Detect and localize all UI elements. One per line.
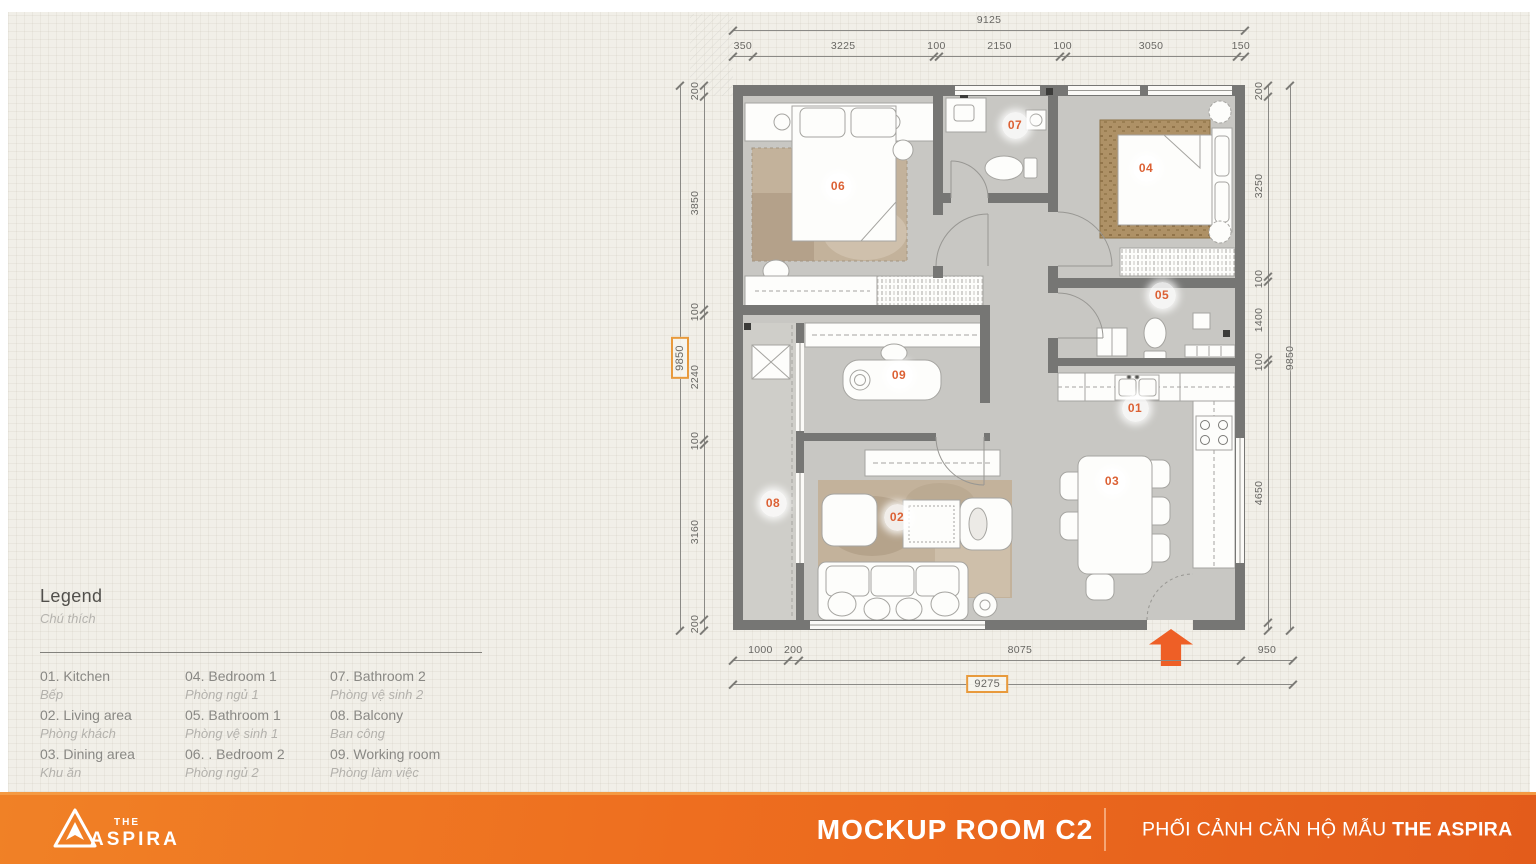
brand-logo: THE ASPIRA	[52, 807, 180, 849]
mockup-room-c2-slide: { "legend": { "title": "Legend", "subtit…	[0, 0, 1536, 864]
room-badge-04: 04	[1133, 155, 1160, 182]
room-badge-06: 06	[825, 173, 852, 200]
legend-items: 01. KitchenBếp02. Living areaPhòng khách…	[40, 667, 510, 784]
legend-item-vi: Phòng vệ sinh 1	[185, 725, 330, 743]
dim-right-overall-label: 9850	[1284, 345, 1296, 370]
room-badge-08: 08	[760, 490, 787, 517]
dim-right-segments-3: 1400	[1253, 308, 1265, 333]
dim-top-segments-1: 3225	[831, 40, 856, 52]
dim-top-segments-3: 2150	[987, 40, 1012, 52]
dim-bottom-overall-label: 9275	[966, 675, 1008, 693]
legend-item-vi: Ban công	[330, 725, 500, 743]
room-badge-07: 07	[1002, 112, 1029, 139]
legend-item-7: 07. Bathroom 2Phòng vệ sinh 2	[330, 667, 500, 706]
dim-right-segments-5: 4650	[1253, 481, 1265, 506]
dim-left-segments-2: 100	[689, 303, 701, 321]
legend-item-en: 04. Bedroom 1	[185, 667, 330, 686]
legend-item-en: 08. Balcony	[330, 706, 500, 725]
floor-plan: 0102030405060708099125350322510021501003…	[640, 8, 1440, 732]
dim-bottom-overall-line	[733, 684, 1293, 685]
legend-divider	[40, 652, 482, 653]
dim-left-segments-6: 200	[689, 615, 701, 633]
room-badge-03: 03	[1099, 468, 1126, 495]
dim-left-segments-5: 3160	[689, 519, 701, 544]
brand-logo-text: THE ASPIRA	[90, 818, 180, 849]
legend-item-5: 05. Bathroom 1Phòng vệ sinh 1	[185, 706, 330, 745]
dim-top-segments-line	[733, 56, 1245, 57]
dim-bottom-segments-3: 950	[1258, 644, 1276, 656]
legend-item-2: 02. Living areaPhòng khách	[40, 706, 185, 745]
dim-right-segments-4: 100	[1253, 352, 1265, 370]
dim-top-segments-6: 150	[1232, 40, 1250, 52]
legend-item-vi: Phòng ngủ 2	[185, 764, 330, 782]
legend-item-8: 08. BalconyBan công	[330, 706, 500, 745]
legend-item-4: 04. Bedroom 1Phòng ngủ 1	[185, 667, 330, 706]
room-badge-09: 09	[886, 362, 913, 389]
dim-left-segments-1: 3850	[689, 190, 701, 215]
dim-bottom-segments-1: 200	[784, 644, 802, 656]
footer-divider	[1104, 808, 1106, 851]
subtitle-regular: PHỐI CẢNH CĂN HỘ MẪU	[1142, 818, 1392, 840]
dim-left-segments-4: 100	[689, 432, 701, 450]
dim-top-segments-0: 350	[734, 40, 752, 52]
dim-top-overall-line	[733, 30, 1245, 31]
legend-item-vi: Phòng khách	[40, 725, 185, 743]
legend-item-1: 01. KitchenBếp	[40, 667, 185, 706]
dim-top-overall-label: 9125	[977, 14, 1002, 26]
legend-item-9: 09. Working roomPhòng làm việc	[330, 745, 500, 784]
dim-left-segments-0: 200	[689, 81, 701, 99]
legend-item-en: 05. Bathroom 1	[185, 706, 330, 725]
legend-item-en: 02. Living area	[40, 706, 185, 725]
dim-right-segments-1: 3250	[1253, 174, 1265, 199]
floor-plan-drawing	[640, 8, 1440, 732]
legend-item-vi: Bếp	[40, 686, 185, 704]
legend-subtitle: Chú thích	[40, 611, 510, 626]
dim-bottom-segments-2: 8075	[1008, 644, 1033, 656]
legend-title: Legend	[40, 586, 510, 607]
subtitle-bold: THE ASPIRA	[1392, 818, 1512, 840]
dim-left-segments-line	[704, 85, 705, 630]
room-badge-01: 01	[1122, 395, 1149, 422]
dim-top-segments-4: 100	[1053, 40, 1071, 52]
legend-item-en: 09. Working room	[330, 745, 500, 764]
legend: Legend Chú thích 01. KitchenBếp02. Livin…	[40, 586, 510, 784]
legend-item-vi: Phòng làm việc	[330, 764, 500, 782]
legend-item-vi: Khu ăn	[40, 764, 185, 782]
dim-bottom-segments-0: 1000	[748, 644, 773, 656]
slide-subtitle: PHỐI CẢNH CĂN HỘ MẪU THE ASPIRA	[1142, 818, 1512, 841]
logo-aspira: ASPIRA	[90, 830, 180, 849]
legend-item-vi: Phòng vệ sinh 2	[330, 686, 500, 704]
legend-item-en: 03. Dining area	[40, 745, 185, 764]
room-badge-02: 02	[884, 504, 911, 531]
logo-the: THE	[114, 818, 180, 828]
dim-left-overall-label: 9850	[671, 337, 689, 379]
legend-item-en: 07. Bathroom 2	[330, 667, 500, 686]
room-badge-05: 05	[1149, 282, 1176, 309]
dim-right-segments-2: 100	[1253, 269, 1265, 287]
dim-top-segments-2: 100	[927, 40, 945, 52]
dim-left-segments-3: 2240	[689, 364, 701, 389]
dim-bottom-segments-line	[733, 660, 1293, 661]
legend-item-3: 03. Dining areaKhu ăn	[40, 745, 185, 784]
slide-title: MOCKUP ROOM C2	[817, 814, 1093, 846]
legend-item-en: 06. . Bedroom 2	[185, 745, 330, 764]
dim-top-segments-5: 3050	[1139, 40, 1164, 52]
legend-item-en: 01. Kitchen	[40, 667, 185, 686]
legend-item-6: 06. . Bedroom 2Phòng ngủ 2	[185, 745, 330, 784]
footer-bar: THE ASPIRA MOCKUP ROOM C2 PHỐI CẢNH CĂN …	[0, 792, 1536, 864]
legend-item-vi: Phòng ngủ 1	[185, 686, 330, 704]
dim-right-segments-0: 200	[1253, 81, 1265, 99]
